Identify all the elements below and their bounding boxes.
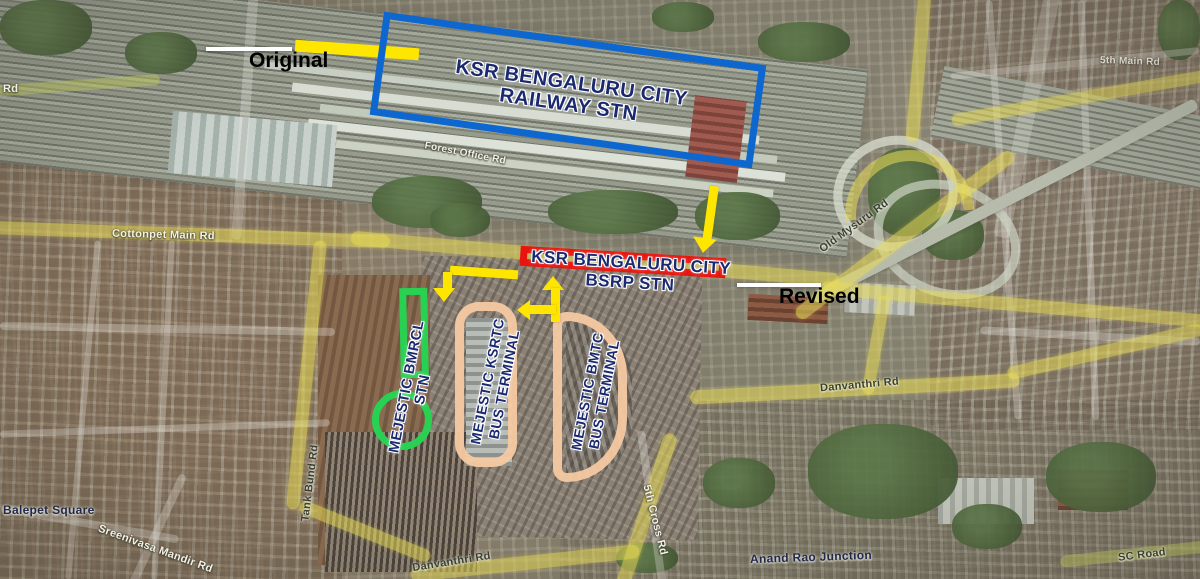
revised-label: Revised xyxy=(737,283,821,287)
arrow-to-terminal-hshaft xyxy=(530,305,556,314)
trees xyxy=(703,458,775,508)
trees xyxy=(952,504,1022,549)
place-label-balepet: Balepet Square xyxy=(3,503,95,517)
trees xyxy=(1046,442,1156,512)
trees xyxy=(0,0,92,55)
original-label-text: Original xyxy=(249,49,328,73)
arrow-down-icon xyxy=(691,236,717,254)
road-label-fifth-main: 5th Main Rd xyxy=(1100,55,1160,68)
trees xyxy=(430,203,490,237)
road-label-left-edge: Rd xyxy=(3,83,18,95)
original-label: Original xyxy=(206,47,292,51)
trees xyxy=(548,190,678,234)
trees xyxy=(652,2,714,32)
trees xyxy=(125,32,197,74)
arrow-down-icon xyxy=(433,288,455,302)
trees xyxy=(808,424,958,519)
revised-label-text: Revised xyxy=(779,285,860,309)
trees xyxy=(758,22,850,62)
annotated-satellite-map: Cottonpet Main Rd Old Mysuru Rd Tank Bun… xyxy=(0,0,1200,579)
